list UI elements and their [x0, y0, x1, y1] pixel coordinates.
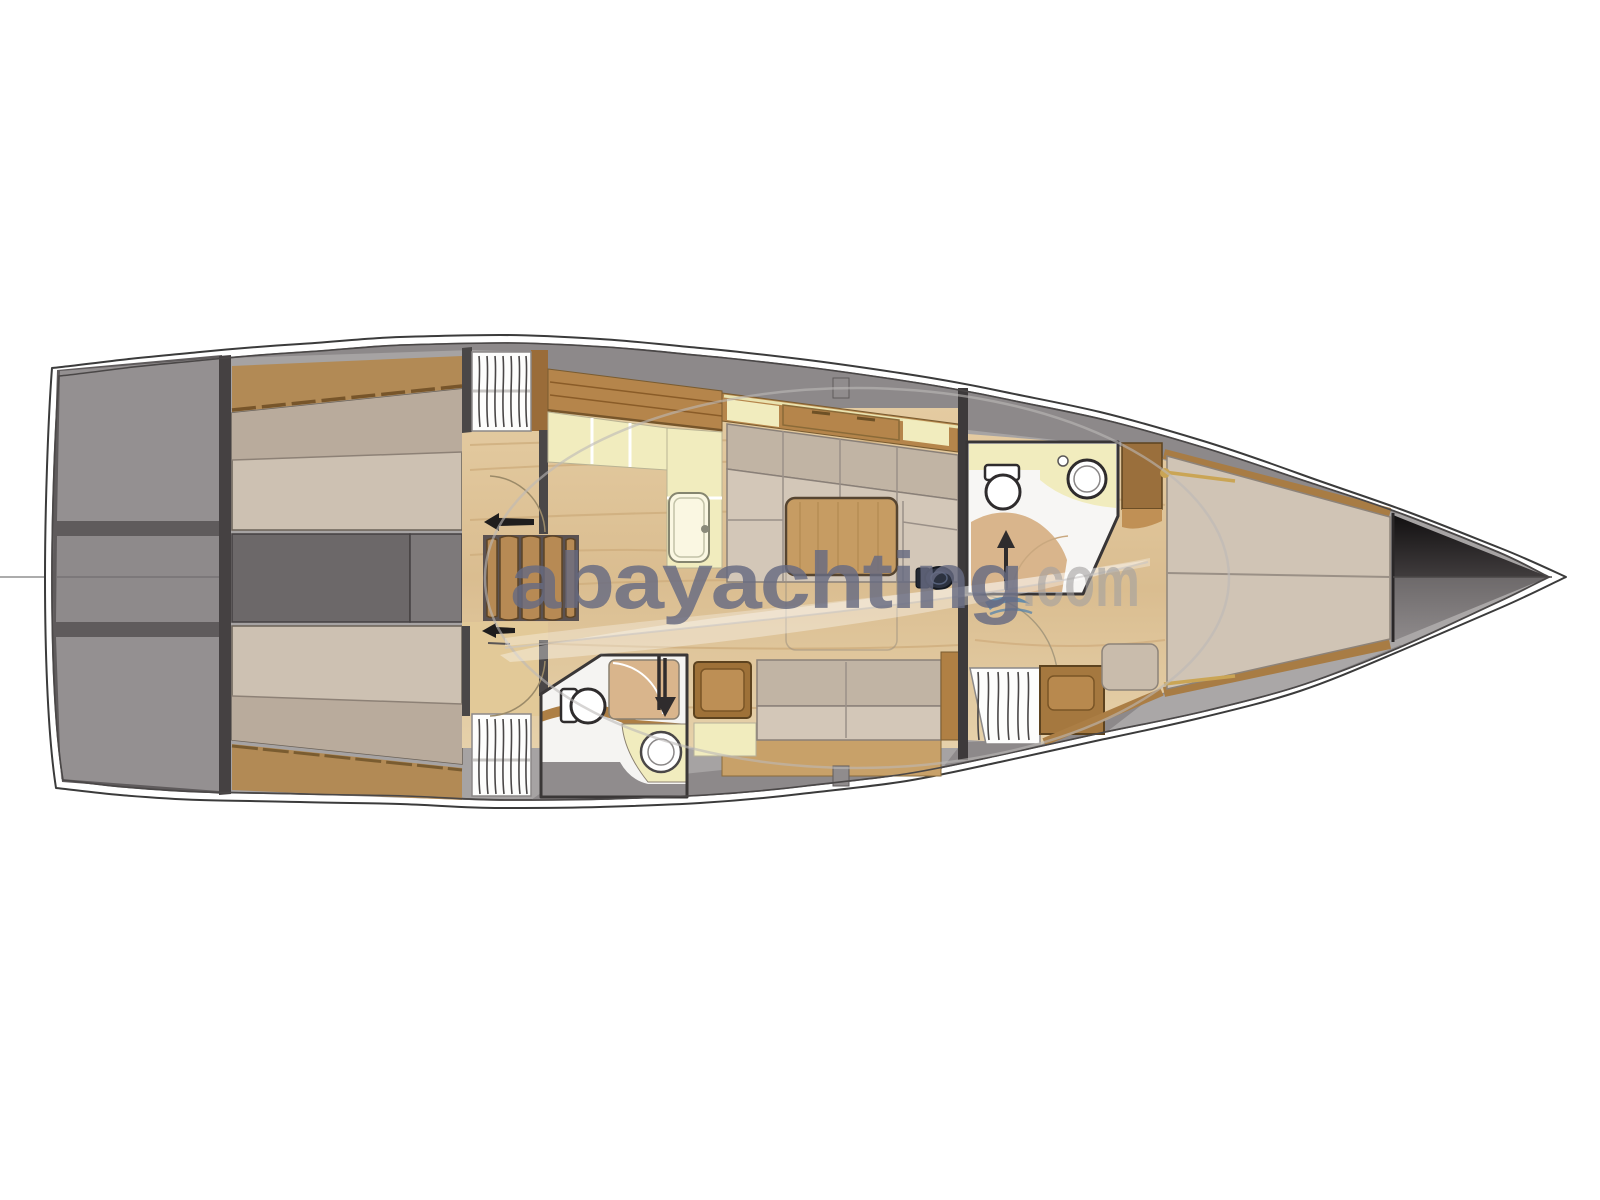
- svg-text:.com: .com: [1022, 542, 1140, 622]
- svg-text:abayachting: abayachting: [510, 536, 1022, 625]
